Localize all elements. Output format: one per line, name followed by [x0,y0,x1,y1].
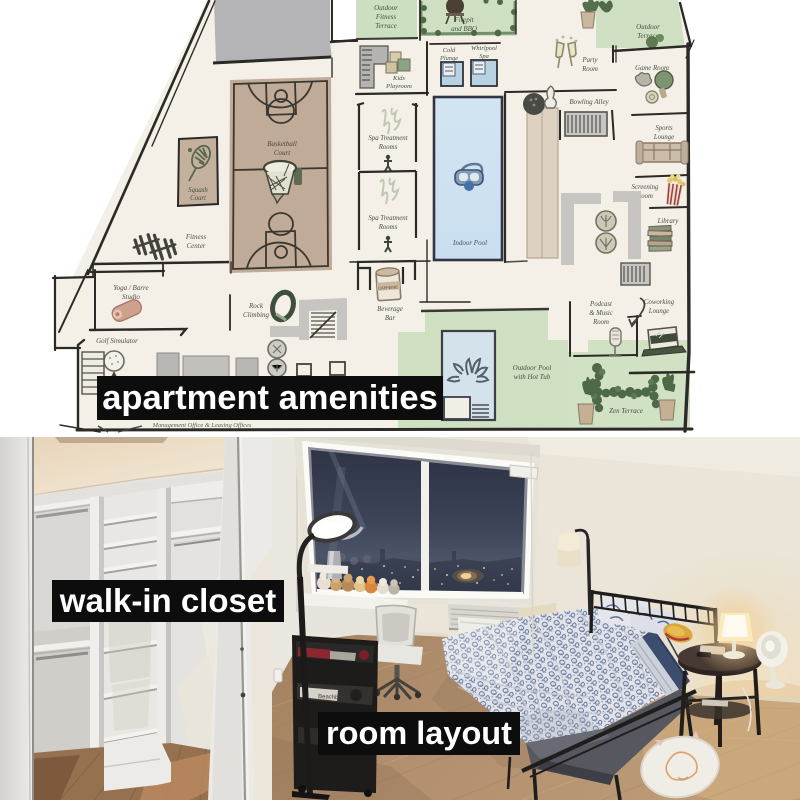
svg-text:Bowling Alley: Bowling Alley [569,98,609,106]
svg-text:Lounge: Lounge [653,134,674,141]
svg-text:Outdoor: Outdoor [636,23,660,31]
svg-text:Cold: Cold [443,47,456,54]
svg-text:Playroom: Playroom [385,83,412,90]
svg-text:Court: Court [190,195,207,202]
svg-text:& Music: & Music [589,310,613,317]
svg-text:Squash: Squash [188,187,208,194]
svg-text:Court: Court [274,149,291,157]
svg-text:Spa: Spa [479,53,489,60]
svg-text:Podcast: Podcast [589,301,613,308]
svg-text:Library: Library [657,218,680,225]
svg-text:Bar: Bar [385,315,396,322]
svg-text:Management Office & Leasing Of: Management Office & Leasing Offices [152,422,252,429]
svg-text:Kids: Kids [392,75,406,82]
svg-text:Basketball: Basketball [267,140,297,148]
svg-text:Golf Simulator: Golf Simulator [96,337,138,345]
svg-text:Coworking: Coworking [644,299,675,306]
svg-text:Rock: Rock [248,302,264,310]
svg-text:Indoor Pool: Indoor Pool [452,239,487,247]
svg-text:Lounge: Lounge [648,308,669,315]
svg-text:Yoga / Barre: Yoga / Barre [113,284,148,292]
svg-text:Terrace: Terrace [375,22,397,30]
svg-text:Party: Party [581,57,598,64]
svg-text:Room: Room [581,66,598,73]
svg-text:Room: Room [592,319,609,326]
svg-text:Firepit: Firepit [453,16,474,24]
svg-text:Outdoor: Outdoor [374,4,398,12]
svg-text:Rooms: Rooms [378,224,398,231]
svg-text:Zen Terrace: Zen Terrace [609,407,643,415]
svg-text:Screening: Screening [632,184,660,191]
svg-text:Fitness: Fitness [185,233,206,241]
svg-text:and BBQ: and BBQ [451,25,477,33]
svg-text:Sports: Sports [655,125,673,132]
svg-text:Spa Treatment: Spa Treatment [368,135,408,142]
svg-text:Beverage: Beverage [377,306,403,313]
svg-text:Fitness: Fitness [375,13,396,21]
svg-text:Outdoor Pool: Outdoor Pool [513,364,552,372]
svg-text:Climbing: Climbing [243,311,270,319]
svg-text:Spa Treatment: Spa Treatment [368,215,408,222]
svg-text:with Hot Tub: with Hot Tub [514,373,551,381]
svg-text:Whirlpool: Whirlpool [471,45,497,52]
svg-text:Plunge: Plunge [439,55,458,62]
svg-text:Center: Center [186,242,205,250]
svg-text:Rooms: Rooms [378,144,398,151]
